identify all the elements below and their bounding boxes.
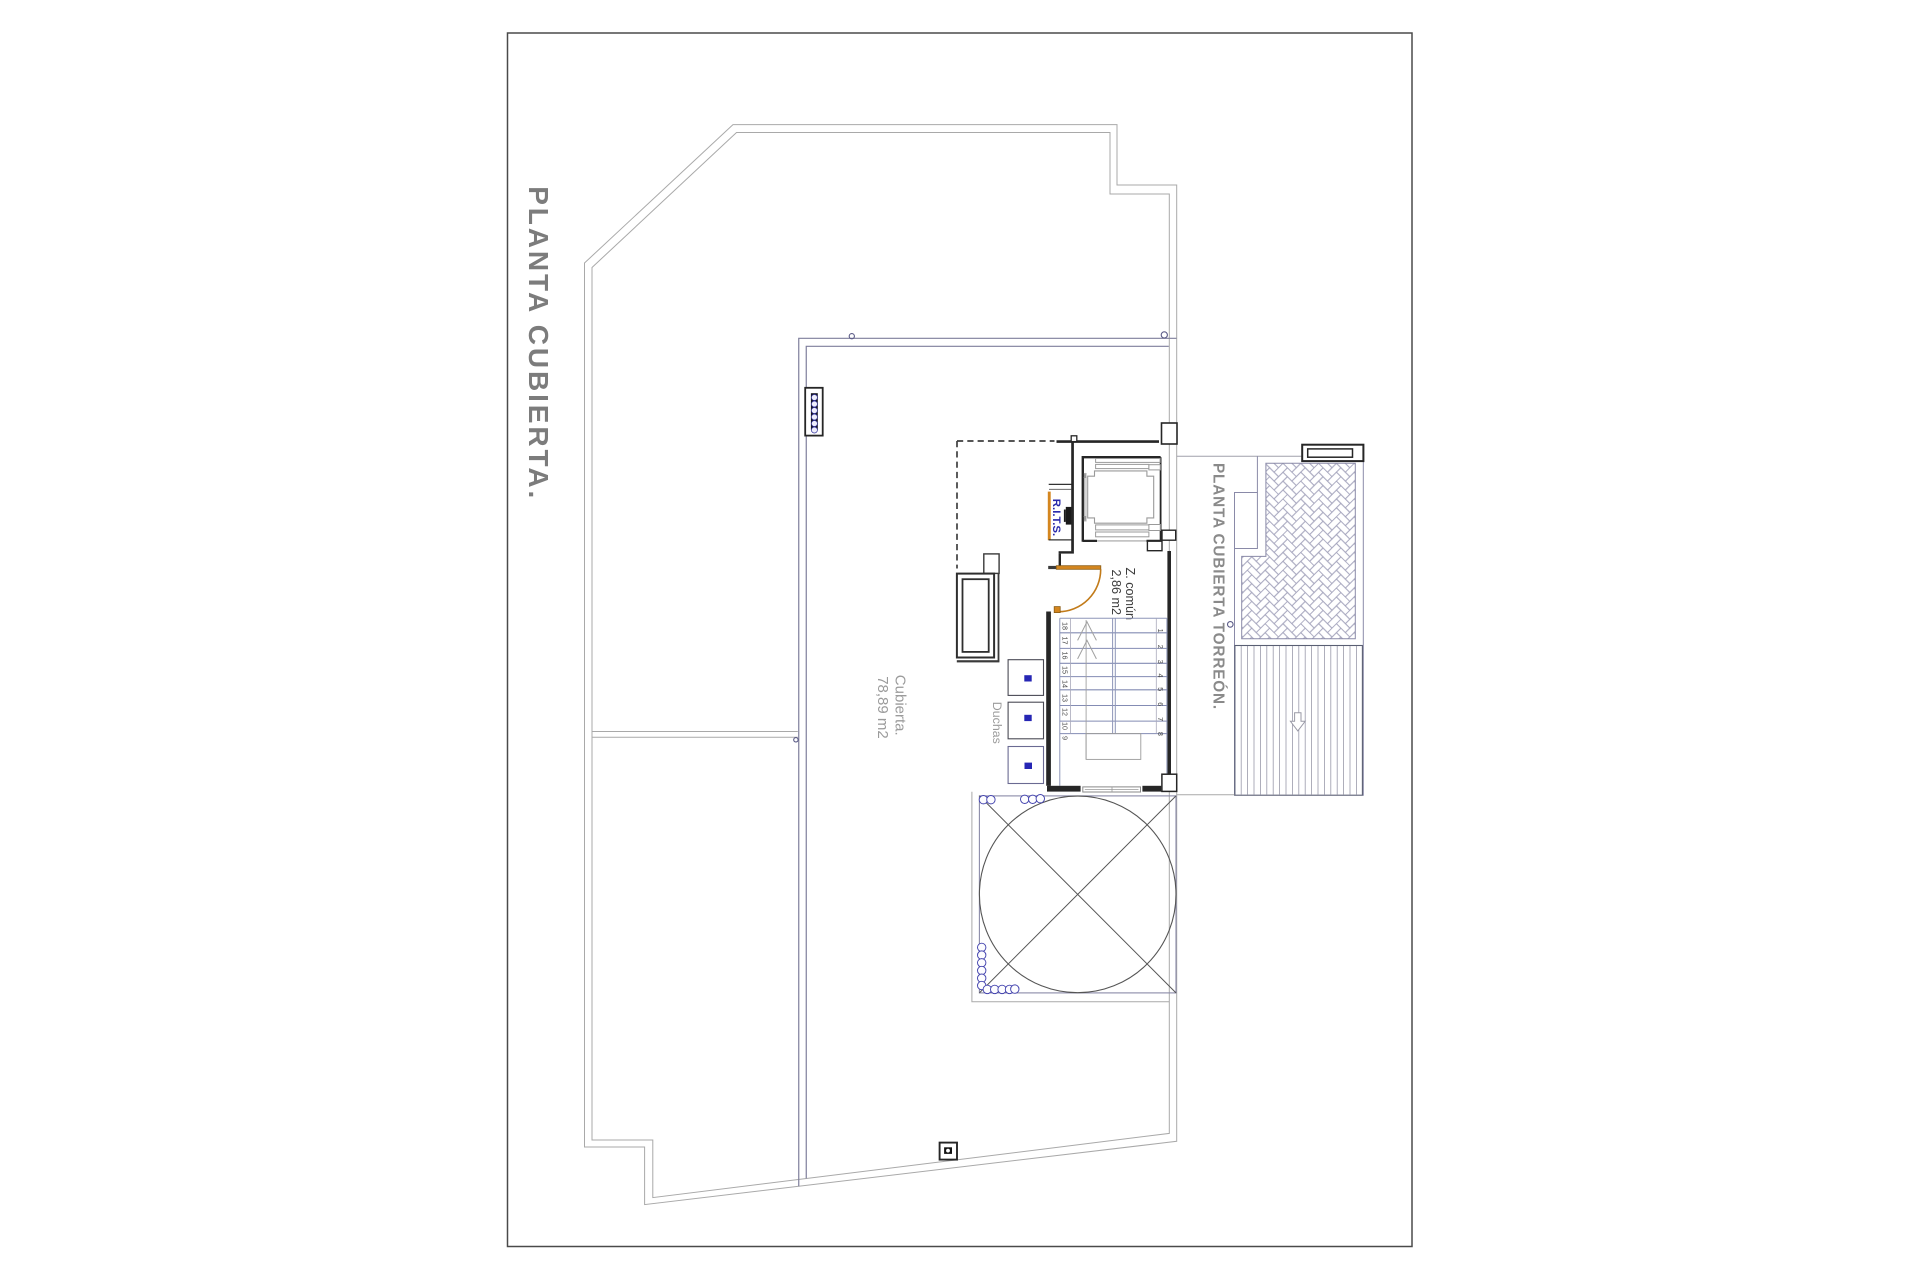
svg-text:3: 3: [1156, 660, 1165, 664]
svg-text:Cubierta.: Cubierta.: [892, 675, 909, 736]
svg-text:9: 9: [1060, 736, 1069, 740]
svg-text:13: 13: [1060, 694, 1069, 702]
svg-text:15: 15: [1060, 666, 1069, 674]
svg-text:8: 8: [1156, 732, 1165, 736]
svg-text:78,89 m2: 78,89 m2: [874, 676, 891, 739]
svg-text:Z. común: Z. común: [1123, 568, 1137, 621]
svg-text:17: 17: [1060, 637, 1069, 645]
svg-text:18: 18: [1060, 622, 1069, 630]
svg-text:12: 12: [1060, 708, 1069, 716]
svg-text:6: 6: [1156, 702, 1165, 706]
svg-text:2: 2: [1156, 645, 1165, 649]
svg-text:2,86 m2: 2,86 m2: [1109, 570, 1123, 616]
svg-text:1: 1: [1156, 629, 1165, 633]
svg-text:R.I.T.S.: R.I.T.S.: [1050, 499, 1062, 536]
svg-text:14: 14: [1060, 680, 1069, 688]
svg-text:PLANTA CUBIERTA TORREÓN.: PLANTA CUBIERTA TORREÓN.: [1209, 463, 1227, 710]
svg-text:PLANTA CUBIERTA.: PLANTA CUBIERTA.: [523, 186, 554, 501]
svg-text:7: 7: [1156, 717, 1165, 721]
svg-text:10: 10: [1060, 722, 1069, 730]
svg-text:4: 4: [1156, 674, 1165, 678]
svg-text:5: 5: [1156, 687, 1165, 691]
svg-text:Duchas: Duchas: [990, 702, 1004, 744]
svg-text:16: 16: [1060, 652, 1069, 660]
